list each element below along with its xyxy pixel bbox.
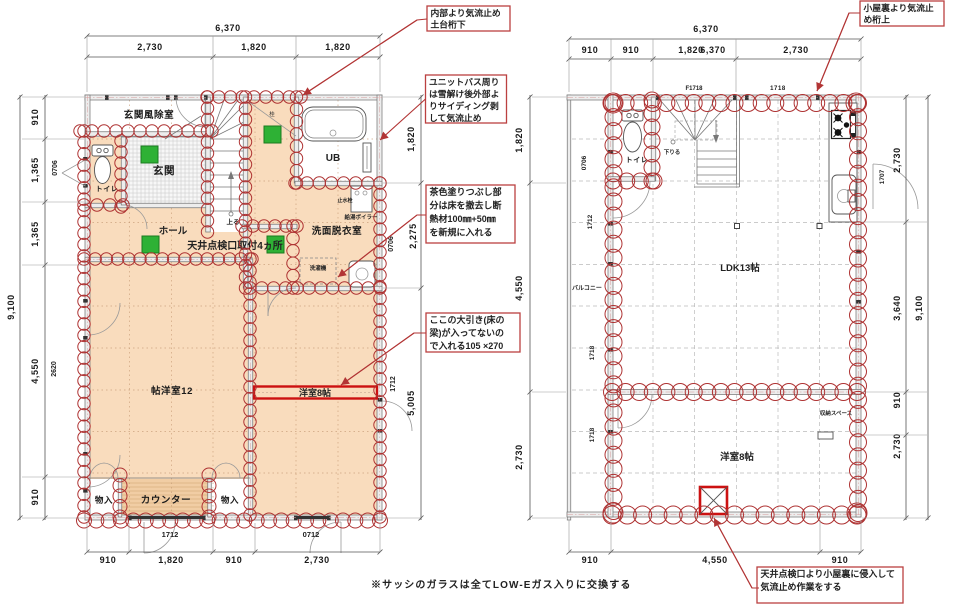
svg-text:2,730: 2,730 bbox=[892, 147, 902, 173]
svg-text:1,820: 1,820 bbox=[406, 126, 416, 152]
svg-text:910: 910 bbox=[892, 392, 902, 409]
svg-text:1,365: 1,365 bbox=[30, 157, 40, 183]
svg-text:UB: UB bbox=[326, 153, 340, 164]
svg-text:1,820: 1,820 bbox=[514, 127, 524, 153]
svg-text:収納スペース: 収納スペース bbox=[820, 409, 853, 417]
svg-text:洋室8帖: 洋室8帖 bbox=[299, 387, 331, 398]
svg-text:4,550: 4,550 bbox=[514, 275, 524, 301]
svg-text:して気流止め: して気流止め bbox=[429, 112, 482, 123]
svg-text:1718: 1718 bbox=[589, 345, 596, 360]
svg-text:バルコニー: バルコニー bbox=[572, 284, 602, 292]
svg-text:内部より気流止め: 内部より気流止め bbox=[431, 7, 501, 18]
svg-text:土台桁下: 土台桁下 bbox=[431, 19, 466, 30]
svg-text:帖洋室12: 帖洋室12 bbox=[151, 385, 193, 397]
svg-text:0706: 0706 bbox=[52, 160, 59, 176]
svg-text:め桁上: め桁上 bbox=[864, 14, 891, 25]
svg-text:4,550: 4,550 bbox=[702, 555, 728, 565]
svg-text:ここの大引き(床の: ここの大引き(床の bbox=[430, 314, 505, 325]
svg-text:1712: 1712 bbox=[390, 376, 397, 392]
svg-text:1,365: 1,365 bbox=[30, 221, 40, 247]
svg-text:熱材100㎜+50㎜: 熱材100㎜+50㎜ bbox=[430, 213, 496, 224]
svg-text:1,820: 1,820 bbox=[241, 42, 267, 52]
svg-text:洋室8帖: 洋室8帖 bbox=[720, 451, 754, 463]
svg-text:カウンター: カウンター bbox=[141, 494, 192, 506]
svg-text:物入: 物入 bbox=[95, 495, 113, 505]
svg-text:ユニットバス周り: ユニットバス周り bbox=[429, 77, 499, 87]
svg-text:0712: 0712 bbox=[303, 530, 320, 539]
svg-text:5,005: 5,005 bbox=[406, 390, 416, 416]
svg-text:2,730: 2,730 bbox=[892, 433, 902, 459]
svg-text:6,370: 6,370 bbox=[700, 45, 726, 55]
svg-text:910: 910 bbox=[832, 555, 849, 565]
svg-text:は雪解け後外部よ: は雪解け後外部よ bbox=[429, 88, 499, 99]
svg-text:桂: 桂 bbox=[269, 110, 275, 118]
svg-text:1,820: 1,820 bbox=[158, 555, 184, 565]
svg-text:4,550: 4,550 bbox=[30, 358, 40, 384]
svg-text:2,730: 2,730 bbox=[783, 45, 809, 55]
svg-text:洗濯機: 洗濯機 bbox=[310, 264, 327, 272]
svg-text:ホール: ホール bbox=[159, 226, 188, 237]
svg-text:玄関風除室: 玄関風除室 bbox=[124, 109, 175, 121]
svg-text:9,100: 9,100 bbox=[914, 295, 924, 321]
svg-text:9,100: 9,100 bbox=[6, 294, 16, 320]
svg-text:2,730: 2,730 bbox=[137, 42, 163, 52]
svg-text:小屋裏より気流止: 小屋裏より気流止 bbox=[864, 2, 934, 13]
svg-text:6,370: 6,370 bbox=[215, 23, 241, 33]
svg-text:で入れる105 ×270: で入れる105 ×270 bbox=[430, 341, 504, 351]
svg-text:気流止め作業をする: 気流止め作業をする bbox=[761, 581, 842, 592]
svg-text:1,820: 1,820 bbox=[325, 42, 351, 52]
svg-text:2,730: 2,730 bbox=[514, 444, 524, 470]
svg-text:物入: 物入 bbox=[221, 495, 239, 505]
svg-text:910: 910 bbox=[226, 555, 243, 565]
svg-text:910: 910 bbox=[30, 489, 40, 506]
svg-text:LDK13帖: LDK13帖 bbox=[720, 262, 760, 274]
svg-text:3,640: 3,640 bbox=[892, 295, 902, 321]
svg-text:F1718: F1718 bbox=[685, 86, 703, 92]
svg-text:下りる: 下りる bbox=[664, 149, 681, 156]
svg-text:玄関: 玄関 bbox=[153, 164, 175, 177]
svg-text:洗面脱衣室: 洗面脱衣室 bbox=[312, 225, 363, 237]
svg-text:910: 910 bbox=[30, 109, 40, 126]
svg-text:910: 910 bbox=[100, 555, 117, 565]
svg-text:りサイディング剥: りサイディング剥 bbox=[429, 100, 499, 111]
svg-text:2,730: 2,730 bbox=[304, 555, 330, 565]
svg-text:910: 910 bbox=[582, 45, 599, 55]
svg-text:2,275: 2,275 bbox=[408, 223, 418, 249]
svg-text:止水栓: 止水栓 bbox=[337, 197, 352, 204]
svg-text:を新規に入れる: を新規に入れる bbox=[430, 227, 493, 238]
svg-text:1712: 1712 bbox=[587, 214, 594, 229]
svg-text:910: 910 bbox=[623, 45, 640, 55]
svg-text:茶色塗りつぶし部: 茶色塗りつぶし部 bbox=[429, 186, 502, 197]
svg-text:2620: 2620 bbox=[51, 361, 58, 377]
svg-text:1718: 1718 bbox=[770, 86, 786, 92]
svg-text:1712: 1712 bbox=[162, 530, 179, 539]
svg-text:分は床を撤去し断: 分は床を撤去し断 bbox=[430, 200, 502, 211]
svg-text:※サッシのガラスは全てLOW-Eガス入りに交換する: ※サッシのガラスは全てLOW-Eガス入りに交換する bbox=[371, 578, 631, 591]
svg-text:1718: 1718 bbox=[589, 427, 596, 442]
svg-text:梁)が入ってないの: 梁)が入ってないの bbox=[429, 327, 505, 338]
svg-text:0706: 0706 bbox=[581, 155, 588, 170]
svg-text:天井点検口より小屋裏に侵入して: 天井点検口より小屋裏に侵入して bbox=[761, 568, 896, 579]
svg-text:給湯ボイラー: 給湯ボイラー bbox=[344, 213, 378, 221]
svg-text:天井点検口取付4ヵ所: 天井点検口取付4ヵ所 bbox=[187, 239, 283, 252]
svg-text:6,370: 6,370 bbox=[693, 24, 719, 34]
svg-text:0706: 0706 bbox=[388, 236, 395, 252]
svg-text:1707: 1707 bbox=[879, 169, 886, 184]
svg-text:910: 910 bbox=[582, 555, 599, 565]
